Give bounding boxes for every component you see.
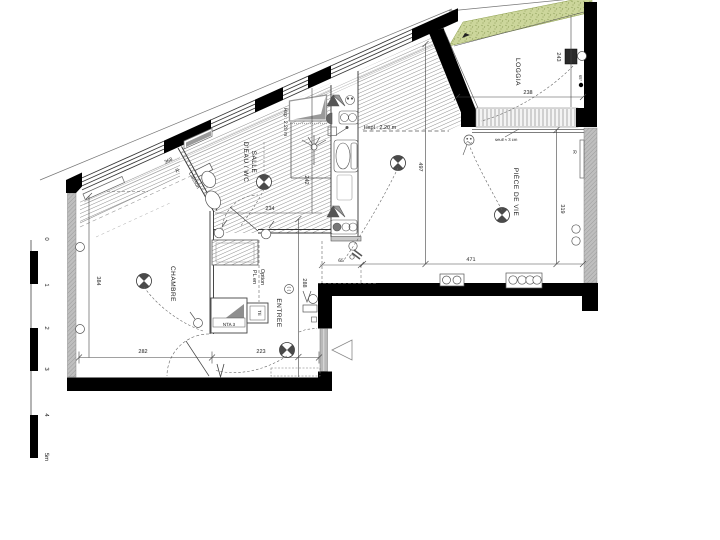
svg-text:D'EAU / WC: D'EAU / WC [242, 142, 249, 183]
svg-text:497: 497 [417, 162, 423, 171]
svg-text:PL en: PL en [251, 270, 257, 284]
svg-text:NTA 3: NTA 3 [223, 322, 236, 327]
svg-text:Hspl : 2.20 m: Hspl : 2.20 m [364, 125, 397, 131]
svg-text:LOGGIA: LOGGIA [514, 58, 521, 86]
svg-text:seuil ≈ 3 cm: seuil ≈ 3 cm [495, 137, 518, 142]
svg-text:238: 238 [523, 90, 532, 96]
svg-text:TE: TE [257, 310, 262, 316]
svg-text:65°: 65° [578, 75, 583, 82]
svg-text:Hsp : 2.20 m: Hsp : 2.20 m [282, 108, 288, 136]
svg-text:282: 282 [138, 349, 147, 355]
svg-text:ENTREE: ENTREE [275, 298, 282, 328]
svg-text:5m: 5m [43, 453, 50, 461]
svg-text:234: 234 [265, 206, 274, 212]
svg-text:SALLE: SALLE [250, 151, 257, 174]
svg-text:288: 288 [301, 278, 307, 287]
svg-text:Option: Option [259, 269, 265, 285]
svg-text:PIÈCE DE VIE: PIÈCE DE VIE [512, 168, 520, 217]
svg-text:319: 319 [559, 204, 565, 213]
svg-text:65: 65 [338, 258, 344, 264]
svg-text:243: 243 [555, 52, 561, 61]
svg-text:471: 471 [466, 257, 475, 263]
svg-text:R: R [571, 150, 577, 154]
svg-text:223: 223 [256, 349, 265, 355]
svg-text:CHAMBRE: CHAMBRE [169, 266, 176, 302]
svg-text:384: 384 [95, 276, 101, 285]
svg-text:242: 242 [303, 175, 309, 184]
